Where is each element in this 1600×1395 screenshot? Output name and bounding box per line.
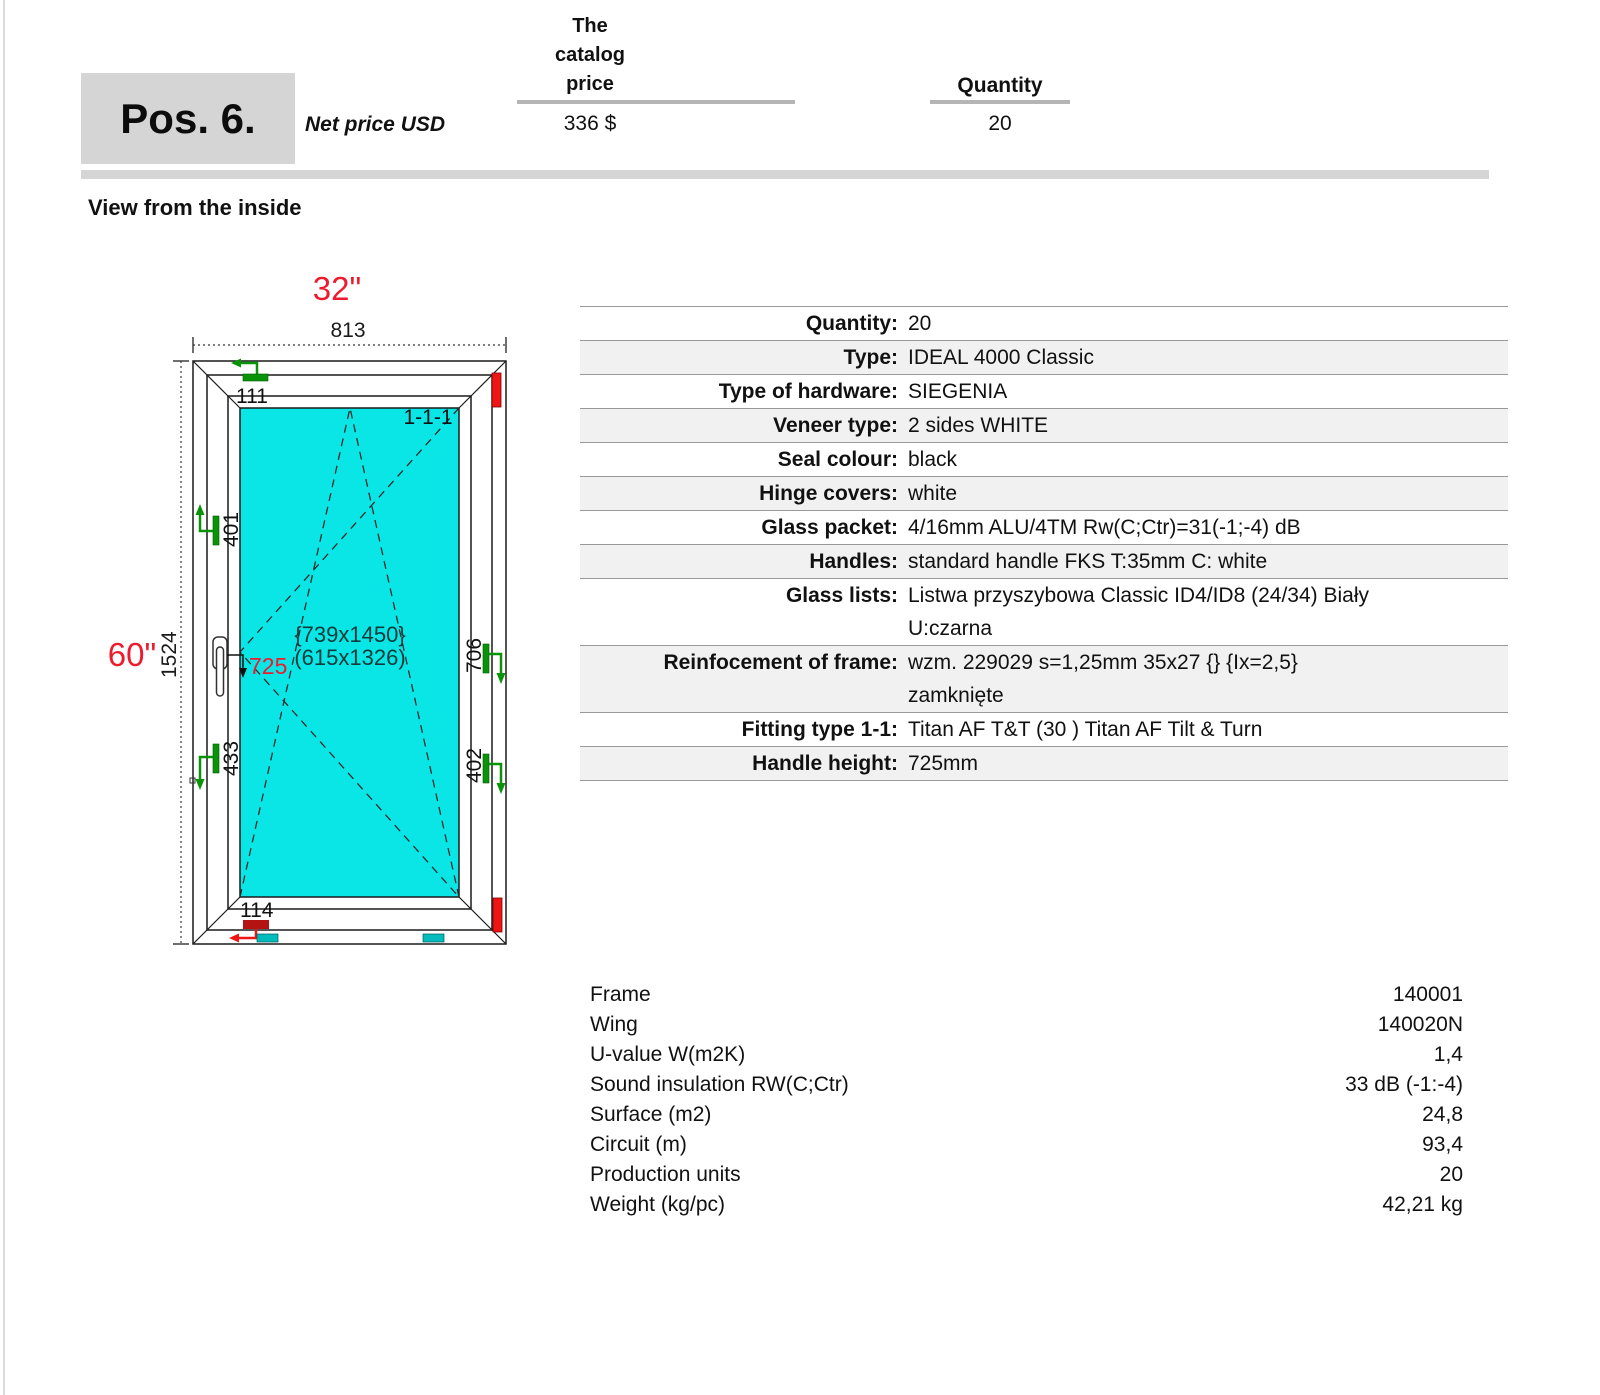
position-number-box: Pos. 6. bbox=[81, 73, 295, 164]
table-row: Hinge covers: white bbox=[580, 476, 1508, 510]
frame-mark-top-right bbox=[492, 373, 501, 407]
table-row: Reinfocement of frame: wzm. 229029 s=1,2… bbox=[580, 645, 1508, 712]
spec-value: 20 bbox=[898, 307, 1508, 340]
spec-label: Handle height: bbox=[580, 747, 898, 780]
table-row: Veneer type: 2 sides WHITE bbox=[580, 408, 1508, 442]
summary-value: 24,8 bbox=[1422, 1100, 1463, 1130]
drain-mark-right bbox=[423, 934, 444, 942]
view-from-inside-label: View from the inside bbox=[88, 195, 302, 221]
spec-label: Hinge covers: bbox=[580, 477, 898, 510]
table-row: Fitting type 1-1: Titan AF T&T (30 ) Tit… bbox=[580, 712, 1508, 746]
width-mm-dim: 813 bbox=[330, 319, 365, 342]
spec-value: Titan AF T&T (30 ) Titan AF Tilt & Turn bbox=[898, 713, 1508, 746]
spec-label: Seal colour: bbox=[580, 443, 898, 476]
sash-code-label: 1-1-1 bbox=[403, 406, 452, 429]
spec-label: Quantity: bbox=[580, 307, 898, 340]
spec-value: wzm. 229029 s=1,25mm 35x27 {} {Ix=2,5} z… bbox=[898, 646, 1508, 712]
summary-label: Frame bbox=[590, 980, 651, 1010]
height-mm-dim: 1524 bbox=[158, 631, 181, 678]
position-number: Pos. 6. bbox=[120, 95, 255, 143]
frame-mark-bottom-right bbox=[493, 898, 502, 932]
list-item: Weight (kg/pc) 42,21 kg bbox=[590, 1190, 1463, 1220]
spec-label: Glass lists: bbox=[580, 579, 898, 645]
table-row: Quantity: 20 bbox=[580, 306, 1508, 340]
summary-label: Circuit (m) bbox=[590, 1130, 687, 1160]
summary-label: Weight (kg/pc) bbox=[590, 1190, 725, 1220]
hinge-mark-right-upper-label: 706 bbox=[463, 638, 486, 673]
spec-value: IDEAL 4000 Classic bbox=[898, 341, 1508, 374]
list-item: Frame 140001 bbox=[590, 980, 1463, 1010]
hinge-mark-top-label: 111 bbox=[236, 385, 268, 408]
spec-value: white bbox=[898, 477, 1508, 510]
summary-label: Wing bbox=[590, 1010, 638, 1040]
spec-label: Handles: bbox=[580, 545, 898, 578]
bottom-mark-label: 114 bbox=[240, 899, 274, 922]
table-row: Glass lists: Listwa przyszybowa Classic … bbox=[580, 578, 1508, 645]
spec-label: Type: bbox=[580, 341, 898, 374]
summary-table: Frame 140001 Wing 140020N U-value W(m2K)… bbox=[590, 980, 1463, 1220]
summary-label: Surface (m2) bbox=[590, 1100, 711, 1130]
spec-value: standard handle FKS T:35mm C: white bbox=[898, 545, 1508, 578]
spec-value: 2 sides WHITE bbox=[898, 409, 1508, 442]
net-price-label: Net price USD bbox=[305, 113, 445, 137]
summary-value: 140020N bbox=[1378, 1010, 1463, 1040]
spec-value: SIEGENIA bbox=[898, 375, 1508, 408]
height-inches-dim: 60" bbox=[108, 636, 156, 673]
drain-mark-left bbox=[257, 934, 278, 942]
window-drawing: 32" 813 60" 1524 bbox=[60, 250, 560, 960]
list-item: U-value W(m2K) 1,4 bbox=[590, 1040, 1463, 1070]
summary-value: 1,4 bbox=[1434, 1040, 1463, 1070]
table-row: Type: IDEAL 4000 Classic bbox=[580, 340, 1508, 374]
width-inches-dim: 32" bbox=[313, 270, 361, 307]
quantity-underline bbox=[930, 100, 1070, 104]
handle-height-label: 725 bbox=[249, 653, 287, 679]
table-row: Handles: standard handle FKS T:35mm C: w… bbox=[580, 544, 1508, 578]
table-row: Seal colour: black bbox=[580, 442, 1508, 476]
list-item: Production units 20 bbox=[590, 1160, 1463, 1190]
offer-page: Pos. 6. Net price USD The catalog price … bbox=[0, 0, 1600, 1395]
catalog-price-value: 336 $ bbox=[495, 112, 685, 136]
table-row: Handle height: 725mm bbox=[580, 746, 1508, 781]
hinge-mark-left-lower-label: 433 bbox=[220, 741, 243, 776]
summary-value: 140001 bbox=[1393, 980, 1463, 1010]
hinge-mark-left-upper-label: 401 bbox=[220, 512, 243, 547]
summary-label: Production units bbox=[590, 1160, 741, 1190]
catalog-price-header: The catalog price bbox=[495, 12, 685, 99]
spec-label: Fitting type 1-1: bbox=[580, 713, 898, 746]
list-item: Circuit (m) 93,4 bbox=[590, 1130, 1463, 1160]
glass-size-braced: {739x1450} bbox=[294, 622, 405, 647]
list-item: Surface (m2) 24,8 bbox=[590, 1100, 1463, 1130]
summary-label: Sound insulation RW(C;Ctr) bbox=[590, 1070, 849, 1100]
spec-label: Veneer type: bbox=[580, 409, 898, 442]
summary-value: 20 bbox=[1440, 1160, 1463, 1190]
spec-label: Reinfocement of frame: bbox=[580, 646, 898, 712]
summary-value: 33 dB (-1:-4) bbox=[1345, 1070, 1463, 1100]
header-divider-strip bbox=[81, 170, 1489, 179]
spec-value: 725mm bbox=[898, 747, 1508, 780]
spec-value: Listwa przyszybowa Classic ID4/ID8 (24/3… bbox=[898, 579, 1508, 645]
list-item: Wing 140020N bbox=[590, 1010, 1463, 1040]
summary-value: 42,21 kg bbox=[1382, 1190, 1463, 1220]
table-row: Glass packet: 4/16mm ALU/4TM Rw(C;Ctr)=3… bbox=[580, 510, 1508, 544]
spec-label: Glass packet: bbox=[580, 511, 898, 544]
hinge-mark-right-lower-label: 402 bbox=[463, 748, 486, 783]
table-row: Type of hardware: SIEGENIA bbox=[580, 374, 1508, 408]
catalog-price-underline bbox=[517, 100, 795, 104]
glass-size-paren: (615x1326) bbox=[294, 645, 405, 670]
list-item: Sound insulation RW(C;Ctr) 33 dB (-1:-4) bbox=[590, 1070, 1463, 1100]
spec-label: Type of hardware: bbox=[580, 375, 898, 408]
spec-value: black bbox=[898, 443, 1508, 476]
summary-label: U-value W(m2K) bbox=[590, 1040, 745, 1070]
quantity-header: Quantity bbox=[910, 74, 1090, 98]
page-edge-line bbox=[3, 0, 5, 1395]
specification-table: Quantity: 20 Type: IDEAL 4000 Classic Ty… bbox=[580, 306, 1508, 781]
spec-value: 4/16mm ALU/4TM Rw(C;Ctr)=31(-1;-4) dB bbox=[898, 511, 1508, 544]
quantity-value: 20 bbox=[910, 112, 1090, 136]
summary-value: 93,4 bbox=[1422, 1130, 1463, 1160]
